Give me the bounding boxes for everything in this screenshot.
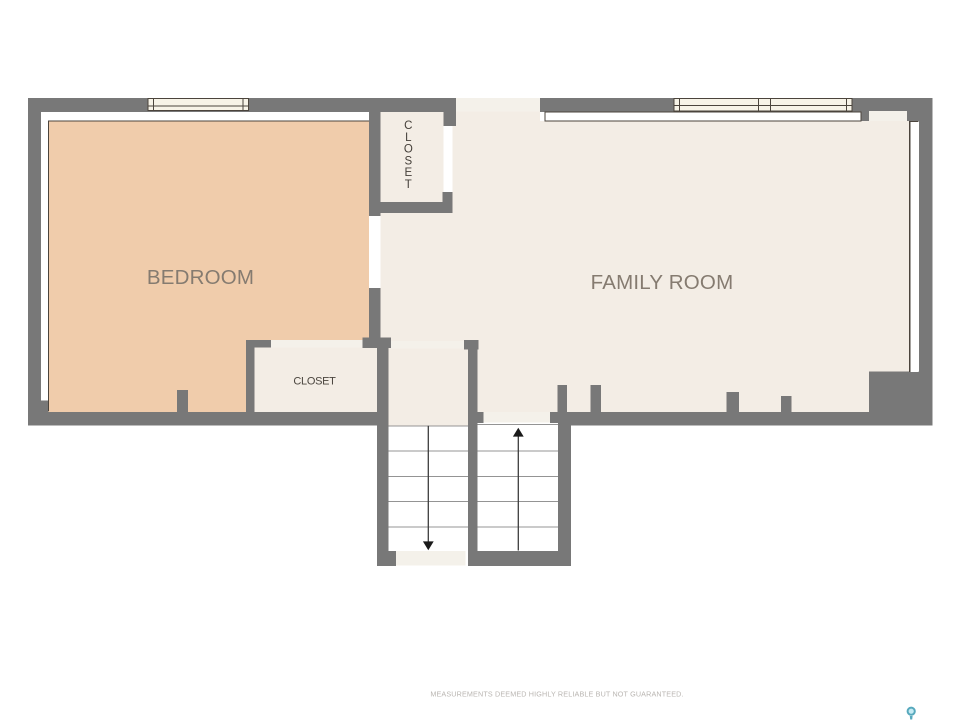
- svg-text:CLOSET: CLOSET: [293, 376, 336, 388]
- svg-text:C: C: [404, 120, 412, 132]
- svg-text:O: O: [404, 144, 413, 156]
- svg-text:E: E: [404, 167, 412, 179]
- svg-text:T: T: [405, 179, 412, 191]
- svg-text:MEASUREMENTS DEEMED HIGHLY REL: MEASUREMENTS DEEMED HIGHLY RELIABLE BUT …: [430, 690, 683, 699]
- svg-text:L: L: [405, 132, 412, 144]
- svg-text:BEDROOM: BEDROOM: [147, 266, 254, 289]
- svg-text:FAMILY ROOM: FAMILY ROOM: [591, 271, 734, 294]
- svg-text:S: S: [404, 155, 412, 167]
